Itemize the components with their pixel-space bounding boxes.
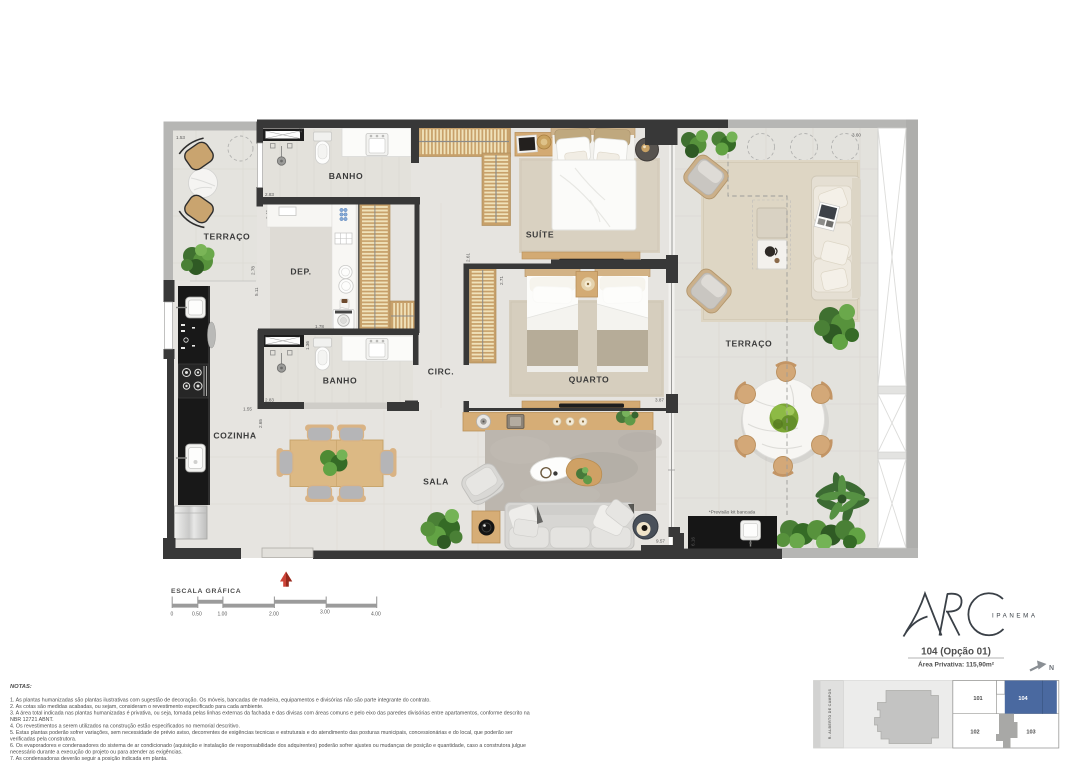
svg-text:104: 104: [1018, 696, 1028, 702]
svg-text:0.50: 0.50: [192, 612, 202, 618]
svg-text:1.53: 1.53: [176, 135, 185, 140]
svg-text:1. As plantas humanizadas são: 1. As plantas humanizadas são plantas il…: [10, 698, 431, 704]
svg-text:101: 101: [973, 696, 982, 702]
svg-text:*Previsão kit bancada: *Previsão kit bancada: [709, 510, 756, 516]
svg-text:2.83: 2.83: [265, 398, 274, 403]
svg-text:DEP.: DEP.: [290, 267, 311, 277]
svg-text:Área Privativa: 115,90m²: Área Privativa: 115,90m²: [918, 660, 995, 669]
svg-text:103: 103: [1026, 730, 1035, 736]
svg-text:2.83: 2.83: [265, 192, 274, 197]
svg-text:SALA: SALA: [423, 477, 449, 487]
svg-text:2.78: 2.78: [251, 266, 256, 275]
svg-text:5. Estas plantas poderão sofre: 5. Estas plantas poderão sofrer variaçõe…: [10, 730, 513, 736]
svg-text:104 (Opção 01): 104 (Opção 01): [921, 647, 991, 658]
svg-text:6. Os evaporadores e condensad: 6. Os evaporadores e condensadores do si…: [10, 743, 526, 749]
svg-text:2.71: 2.71: [499, 276, 504, 285]
svg-text:2.65: 2.65: [258, 419, 263, 428]
svg-text:1.00: 1.00: [218, 612, 228, 618]
svg-text:necessário durante a execução: necessário durante a execução do projeto…: [10, 750, 183, 756]
svg-text:7. As condensadoras deverão se: 7. As condensadoras deverão seguir a pos…: [10, 756, 168, 762]
svg-text:CIRC.: CIRC.: [428, 367, 454, 377]
svg-text:4. Os revestimentos a serem ut: 4. Os revestimentos a serem utilizados n…: [10, 724, 240, 730]
svg-text:IPANEMA: IPANEMA: [992, 613, 1038, 620]
svg-text:TERRAÇO: TERRAÇO: [726, 339, 773, 349]
svg-text:NOTAS:: NOTAS:: [10, 684, 32, 690]
svg-text:6.16: 6.16: [691, 537, 696, 546]
svg-text:BANHO: BANHO: [323, 376, 358, 386]
svg-text:5.11: 5.11: [254, 287, 259, 296]
svg-text:3.60: 3.60: [852, 133, 861, 138]
svg-text:BANHO: BANHO: [329, 171, 364, 181]
svg-text:3. A área total indicada nas p: 3. A área total indicada nas plantas hum…: [10, 711, 530, 717]
svg-text:2. As cotas são medidas acabad: 2. As cotas são medidas acabadas, ou sej…: [10, 704, 264, 710]
svg-text:2.00: 2.00: [269, 612, 279, 618]
svg-text:R. ALBERTO DE CAMPOS: R. ALBERTO DE CAMPOS: [828, 688, 832, 739]
svg-text:ESCALA GRÁFICA: ESCALA GRÁFICA: [171, 586, 241, 595]
svg-text:N: N: [1049, 665, 1054, 672]
svg-text:3.87: 3.87: [655, 398, 664, 403]
svg-text:4.00: 4.00: [371, 612, 381, 618]
svg-text:COZINHA: COZINHA: [213, 431, 256, 441]
svg-text:3.00: 3.00: [320, 610, 330, 616]
svg-text:1.78: 1.78: [315, 324, 324, 329]
svg-text:TERRAÇO: TERRAÇO: [204, 232, 251, 242]
svg-text:SUÍTE: SUÍTE: [526, 230, 554, 240]
svg-text:9.57: 9.57: [656, 539, 665, 544]
svg-text:QUARTO: QUARTO: [569, 375, 610, 385]
svg-text:0: 0: [171, 612, 174, 618]
svg-text:NBR 12721 ABNT.: NBR 12721 ABNT.: [10, 717, 54, 723]
svg-text:1.36: 1.36: [305, 341, 310, 350]
svg-text:verificadas pela construtora.: verificadas pela construtora.: [10, 737, 76, 743]
svg-text:102: 102: [970, 730, 979, 736]
svg-text:2.61: 2.61: [466, 253, 471, 262]
svg-text:1.55: 1.55: [243, 407, 252, 412]
